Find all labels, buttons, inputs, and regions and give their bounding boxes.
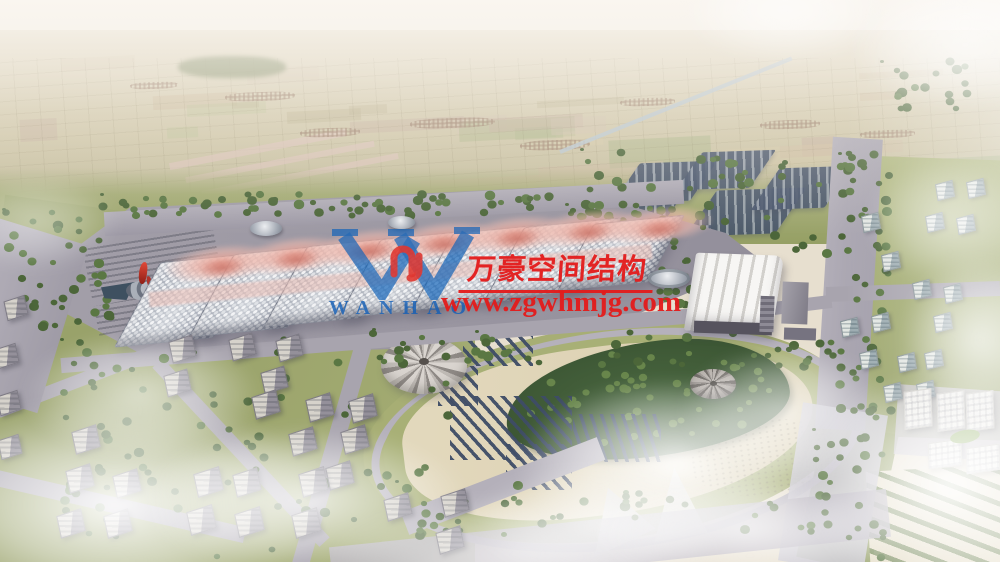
aerial-rendering-exhibition-campus: WANHAO 万豪空间结构 www.zgwhmjg.com — [0, 0, 1000, 562]
watermark-website: www.zgwhmjg.com — [441, 286, 681, 319]
watermark: WANHAO 万豪空间结构 www.zgwhmjg.com — [0, 0, 1000, 562]
